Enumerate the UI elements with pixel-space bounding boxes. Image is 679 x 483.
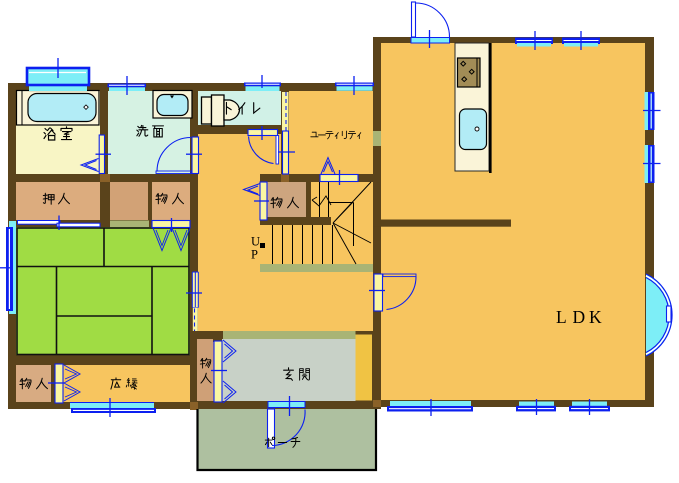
- svg-text:K: K: [589, 307, 602, 327]
- svg-text:U: U: [251, 235, 260, 249]
- svg-text:L: L: [556, 307, 567, 327]
- svg-text:D: D: [573, 307, 586, 327]
- svg-text:P: P: [251, 248, 258, 262]
